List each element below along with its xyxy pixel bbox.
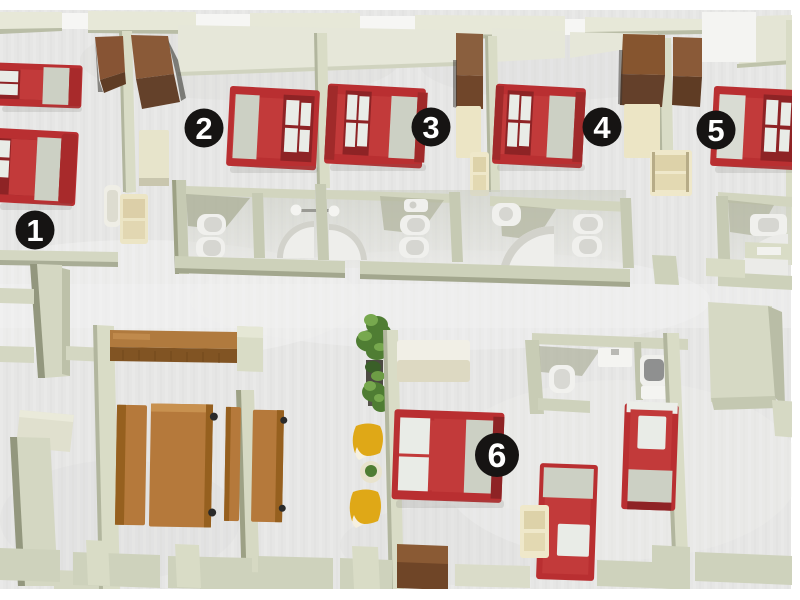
svg-text:3: 3 [422, 110, 439, 145]
svg-text:6: 6 [488, 437, 507, 475]
svg-text:1: 1 [26, 213, 43, 248]
svg-text:2: 2 [195, 111, 212, 146]
svg-text:4: 4 [593, 110, 611, 145]
svg-text:5: 5 [707, 113, 724, 148]
